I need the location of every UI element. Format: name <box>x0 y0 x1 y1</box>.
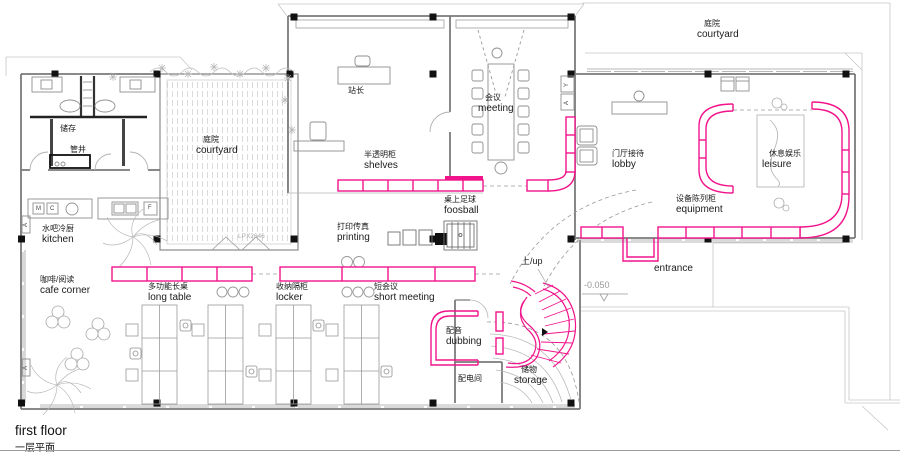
label-equipment: 设备陈列柜 equipment <box>676 195 723 215</box>
label-meeting: 会议 meeting <box>478 94 514 114</box>
site-eave-lines <box>6 3 900 430</box>
desk-clusters <box>126 305 392 404</box>
label-foosball: 桌上足球 foosball <box>444 196 478 216</box>
appliance-tag-a3: A <box>564 101 570 105</box>
floor-plan-sheet: 庭院 courtyard 庭院 courtyard 站长 会议 meeting … <box>0 0 900 454</box>
appliance-tag-m: M <box>36 206 41 212</box>
label-up: 上/up <box>521 256 543 266</box>
printing-equipment <box>388 230 447 245</box>
label-station-master: 站长 <box>348 87 364 96</box>
label-storage: 储物 storage <box>514 366 547 386</box>
label-leisure: 休息娱乐 leisure <box>762 150 801 170</box>
elevation-text: -0.050 <box>584 281 610 290</box>
label-pipe-shaft: 管井 <box>70 146 86 155</box>
label-short-meeting: 短会议 short meeting <box>374 283 435 303</box>
label-courtyard-top-right: 庭院 courtyard <box>697 20 739 40</box>
label-electrical-room: 配电间 <box>458 375 482 384</box>
shelves-row-lower <box>112 267 475 281</box>
appliance-tag-f: F <box>148 205 152 211</box>
elevation-marker <box>582 294 628 301</box>
leisure-display-counter <box>581 102 849 261</box>
restroom-block <box>30 76 155 170</box>
sheet-bottom-rule <box>0 450 900 451</box>
label-courtyard-left: 庭院 courtyard <box>196 136 238 156</box>
structural-columns <box>18 14 850 407</box>
appliance-tag-y: Y <box>564 83 570 87</box>
foosball-table <box>444 221 477 250</box>
spiral-staircase <box>506 281 576 367</box>
window-code-text: LPX2646 <box>238 234 265 241</box>
label-cafe-corner: 咖啡/阅读 cafe corner <box>40 276 90 296</box>
courtyard-left-hatch <box>160 74 298 250</box>
walls <box>21 16 855 409</box>
label-locker: 收纳隔柜 locker <box>276 283 308 303</box>
label-printing: 打印传真 printing <box>337 223 370 243</box>
up-leader-line <box>538 269 549 288</box>
station-master-office <box>294 56 450 151</box>
label-kitchen: 水吧冷厨 kitchen <box>42 225 74 245</box>
appliance-tag-c: C <box>50 206 54 212</box>
label-store: 储存 <box>60 125 76 134</box>
wall-tag-a2: A <box>23 366 29 370</box>
lobby-furniture <box>577 77 749 165</box>
label-shelves: 半透明柜 shelves <box>364 151 398 171</box>
equipment-display <box>699 104 733 193</box>
label-long-table: 多功能长桌 long table <box>148 283 191 303</box>
label-lobby: 门厅接待 lobby <box>612 150 644 170</box>
label-entrance: entrance <box>654 263 693 274</box>
label-dubbing: 配音 dubbing <box>446 327 482 347</box>
sheet-title-en: first floor <box>15 423 67 438</box>
wall-tag-a1: A <box>23 223 29 227</box>
sheet-title-zh: 一层平面 <box>15 439 55 454</box>
window-lines <box>23 20 853 407</box>
plan-linework <box>0 0 900 454</box>
